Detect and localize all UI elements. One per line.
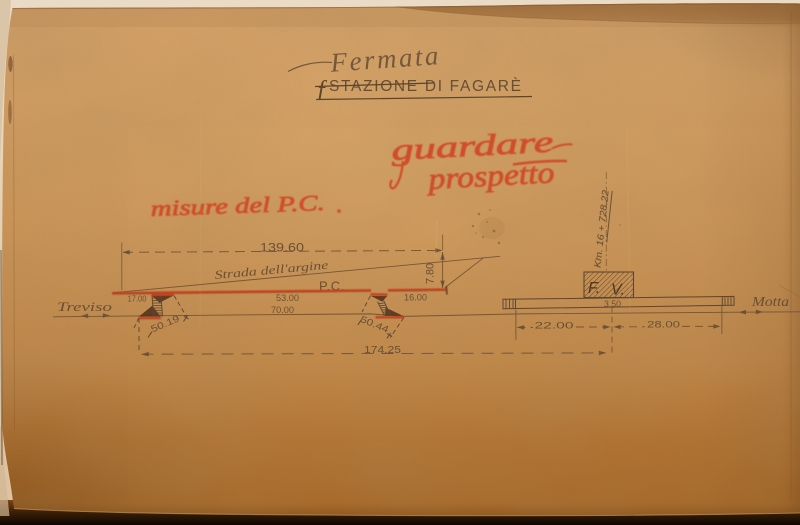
svg-text:F.: F. (588, 280, 600, 297)
svg-text:16.00: 16.00 (404, 293, 427, 303)
svg-text:17.00: 17.00 (128, 295, 148, 304)
svg-text:Treviso: Treviso (57, 299, 113, 314)
svg-text:7.80: 7.80 (425, 263, 437, 284)
svg-text:53.00: 53.00 (276, 293, 299, 303)
svg-text:V.: V. (611, 282, 625, 299)
svg-text:STAZIONE DI FAGARÈ: STAZIONE DI FAGARÈ (329, 78, 521, 95)
svg-text:ƒ: ƒ (316, 76, 328, 102)
svg-text:Motta: Motta (751, 294, 789, 309)
svg-text:139.60: 139.60 (260, 243, 304, 255)
svg-text:70.00: 70.00 (271, 305, 294, 315)
svg-text:174.25: 174.25 (364, 345, 402, 356)
svg-text:28.00: 28.00 (647, 320, 680, 331)
svg-text:22.00: 22.00 (535, 321, 574, 332)
